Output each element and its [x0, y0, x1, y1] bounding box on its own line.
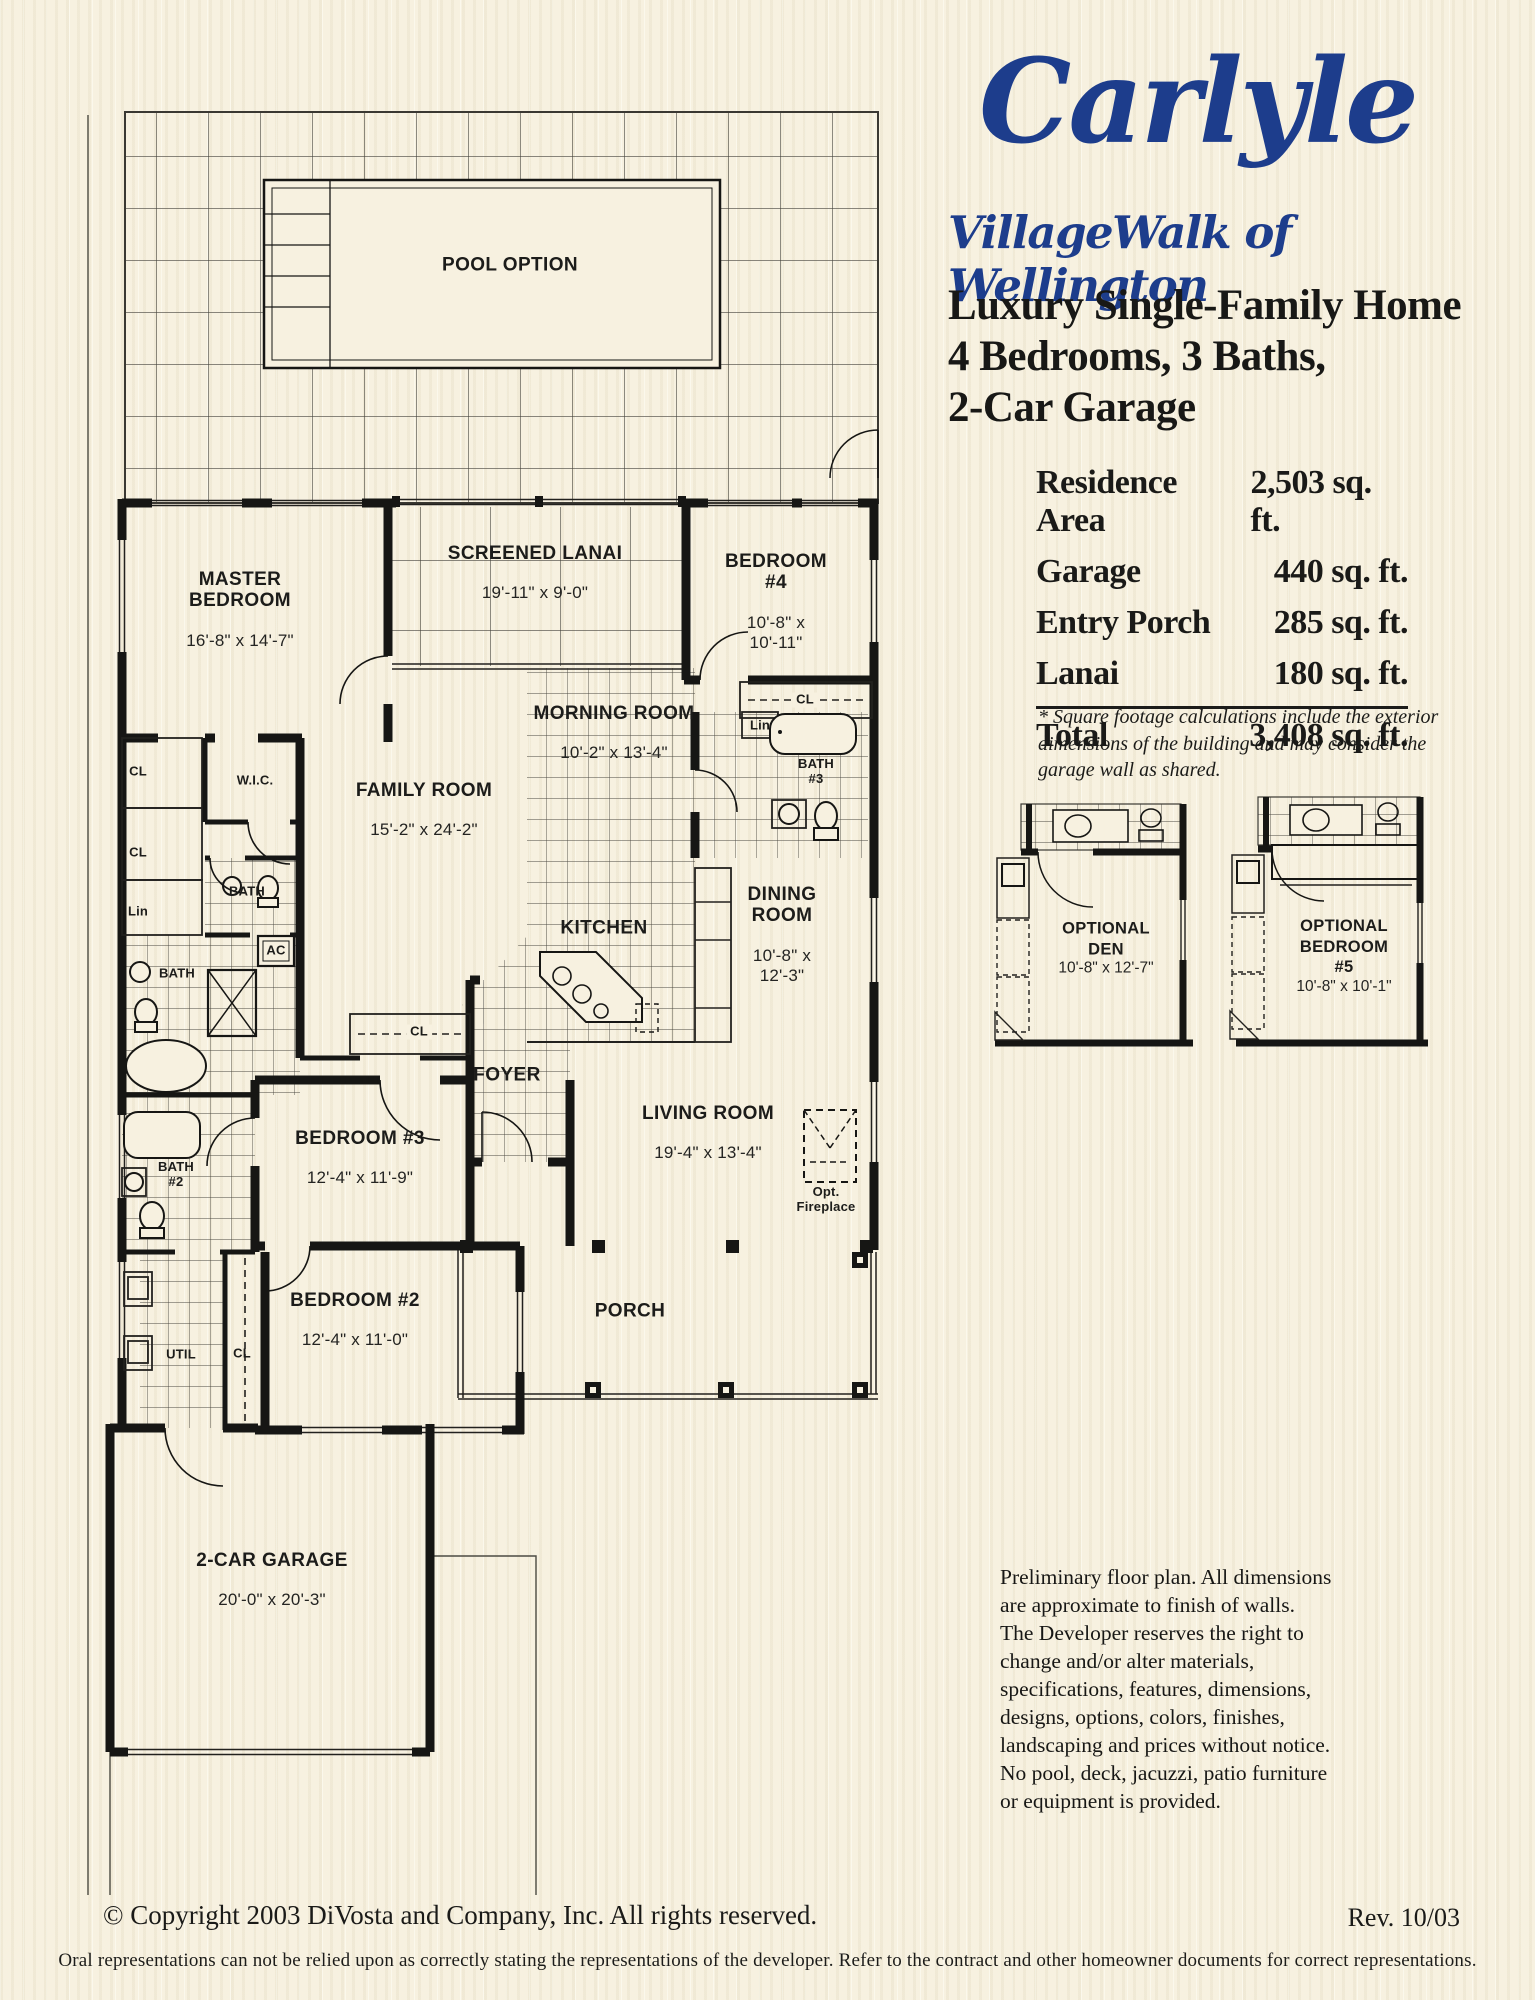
- area-row-value: 180 sq. ft.: [1274, 655, 1408, 693]
- brochure-page: POOL OPTION SCREENED LANAI 19'-11" x 9'-…: [0, 0, 1535, 2000]
- area-table-row: Residence Area 2,503 sq. ft.: [1036, 464, 1408, 540]
- disclaimer-text: Preliminary floor plan. All dimensions a…: [1000, 1564, 1332, 1815]
- revision-label: Rev. 10/03: [1290, 1903, 1460, 1933]
- area-row-label: Entry Porch: [1036, 604, 1210, 642]
- home-description-line2: 4 Bedrooms, 3 Baths,: [948, 331, 1468, 382]
- area-row-value: 285 sq. ft.: [1274, 604, 1408, 642]
- optional-bedroom5-plan: OPTIONAL BEDROOM #5 10'-8" x 10'-1": [1228, 793, 1448, 1058]
- optional-den-drawing: [993, 800, 1203, 1050]
- optional-den-plan: OPTIONAL DEN 10'-8" x 12'-7": [993, 800, 1203, 1050]
- floor-plan-drawing: [85, 105, 885, 1905]
- area-table-row: Garage 440 sq. ft.: [1036, 553, 1408, 591]
- copyright-line: © Copyright 2003 DiVosta and Company, In…: [103, 1900, 817, 1931]
- area-row-value: 440 sq. ft.: [1274, 553, 1408, 591]
- area-table-row: Entry Porch 285 sq. ft.: [1036, 604, 1408, 642]
- sqft-footnote: * Square footage calculations include th…: [1038, 704, 1440, 784]
- home-description-line1: Luxury Single-Family Home: [948, 280, 1468, 331]
- optional-bedroom5-drawing: [1228, 793, 1448, 1058]
- plan-name: Carlyle: [935, 44, 1460, 160]
- home-description-line3: 2-Car Garage: [948, 382, 1468, 433]
- legal-fine-print: Oral representations can not be relied u…: [0, 1950, 1535, 1972]
- area-row-label: Residence Area: [1036, 464, 1250, 540]
- area-row-value: 2,503 sq. ft.: [1250, 464, 1408, 540]
- area-row-label: Lanai: [1036, 655, 1119, 693]
- home-description: Luxury Single-Family Home 4 Bedrooms, 3 …: [948, 280, 1468, 433]
- area-table-row: Lanai 180 sq. ft.: [1036, 655, 1408, 693]
- area-row-label: Garage: [1036, 553, 1141, 591]
